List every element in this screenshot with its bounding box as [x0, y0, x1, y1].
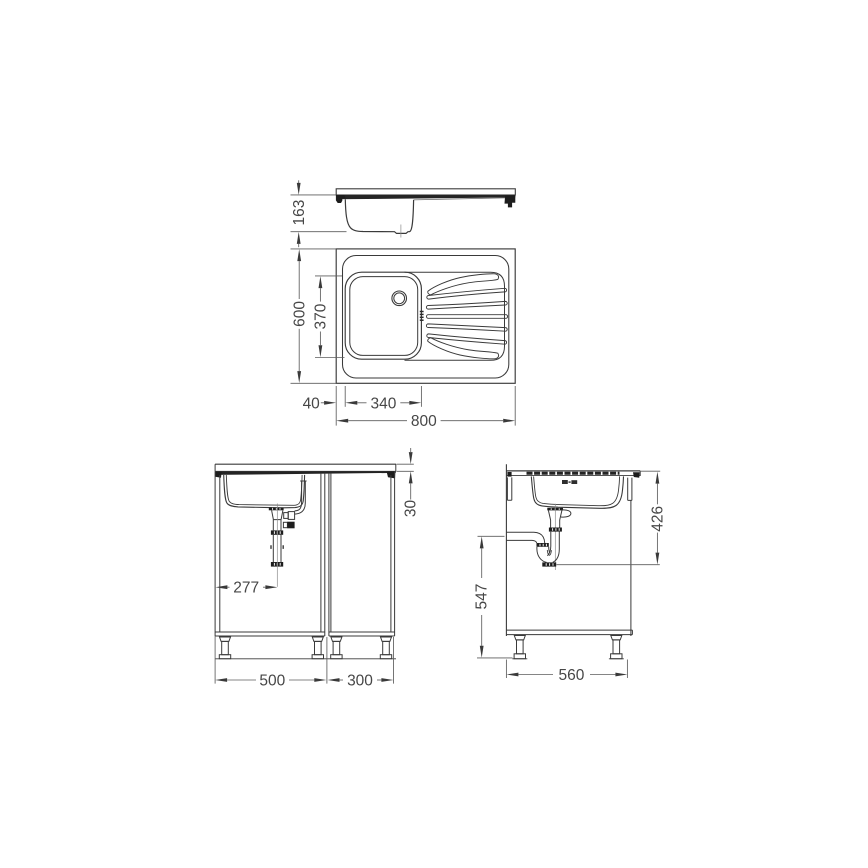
svg-text:370: 370	[313, 303, 330, 329]
svg-text:163: 163	[291, 200, 308, 226]
svg-text:547: 547	[474, 584, 491, 610]
svg-text:30: 30	[402, 500, 419, 518]
svg-text:600: 600	[291, 301, 308, 327]
svg-text:426: 426	[649, 506, 666, 532]
svg-text:800: 800	[411, 413, 437, 430]
svg-text:277: 277	[233, 580, 259, 597]
svg-text:300: 300	[347, 673, 373, 690]
svg-text:560: 560	[558, 667, 584, 684]
svg-text:340: 340	[370, 395, 396, 412]
svg-text:500: 500	[259, 673, 285, 690]
svg-text:40: 40	[303, 395, 321, 412]
